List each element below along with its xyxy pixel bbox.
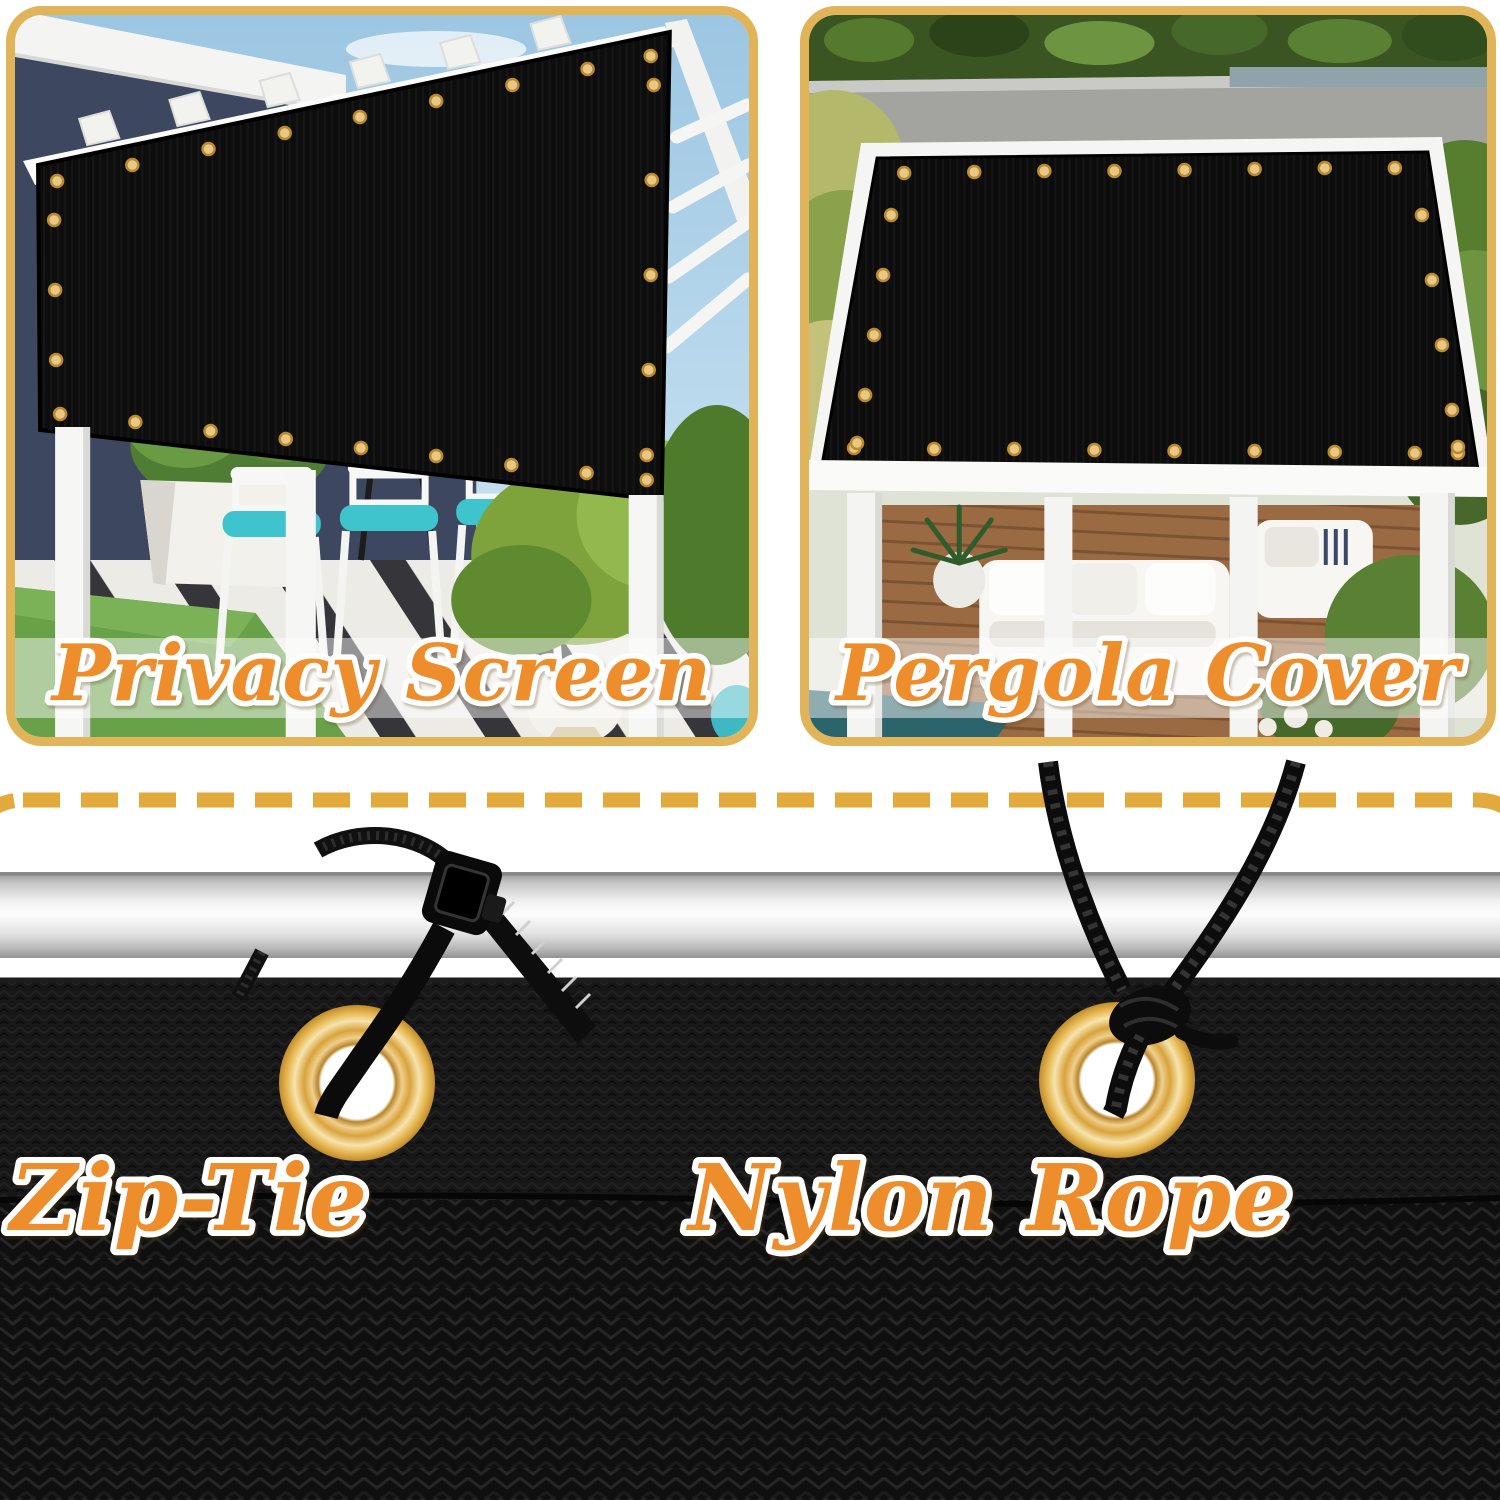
attachment-detail-section: Zip-Tie Nylon Rope [0, 748, 1500, 1500]
pergola-cover-mesh [822, 152, 1478, 470]
nylon-rope-label: Nylon Rope [685, 1144, 1291, 1252]
privacy-screen-caption: Privacy Screen [15, 603, 749, 735]
pergola-cover-label: Pergola Cover [834, 628, 1464, 719]
product-image: Privacy Screen [0, 0, 1500, 1500]
privacy-screen-label: Privacy Screen [50, 628, 712, 719]
attachment-detail-photo: Zip-Tie Nylon Rope [0, 748, 1500, 1500]
mounting-pole [0, 872, 1500, 958]
zip-tie-label: Zip-Tie [6, 1144, 368, 1252]
wall-reflection [1230, 67, 1487, 87]
privacy-screen-panel: Privacy Screen [6, 6, 758, 746]
pergola-cover-panel: Pergola Cover [800, 6, 1496, 746]
pergola-cover-caption: Pergola Cover [809, 603, 1487, 735]
